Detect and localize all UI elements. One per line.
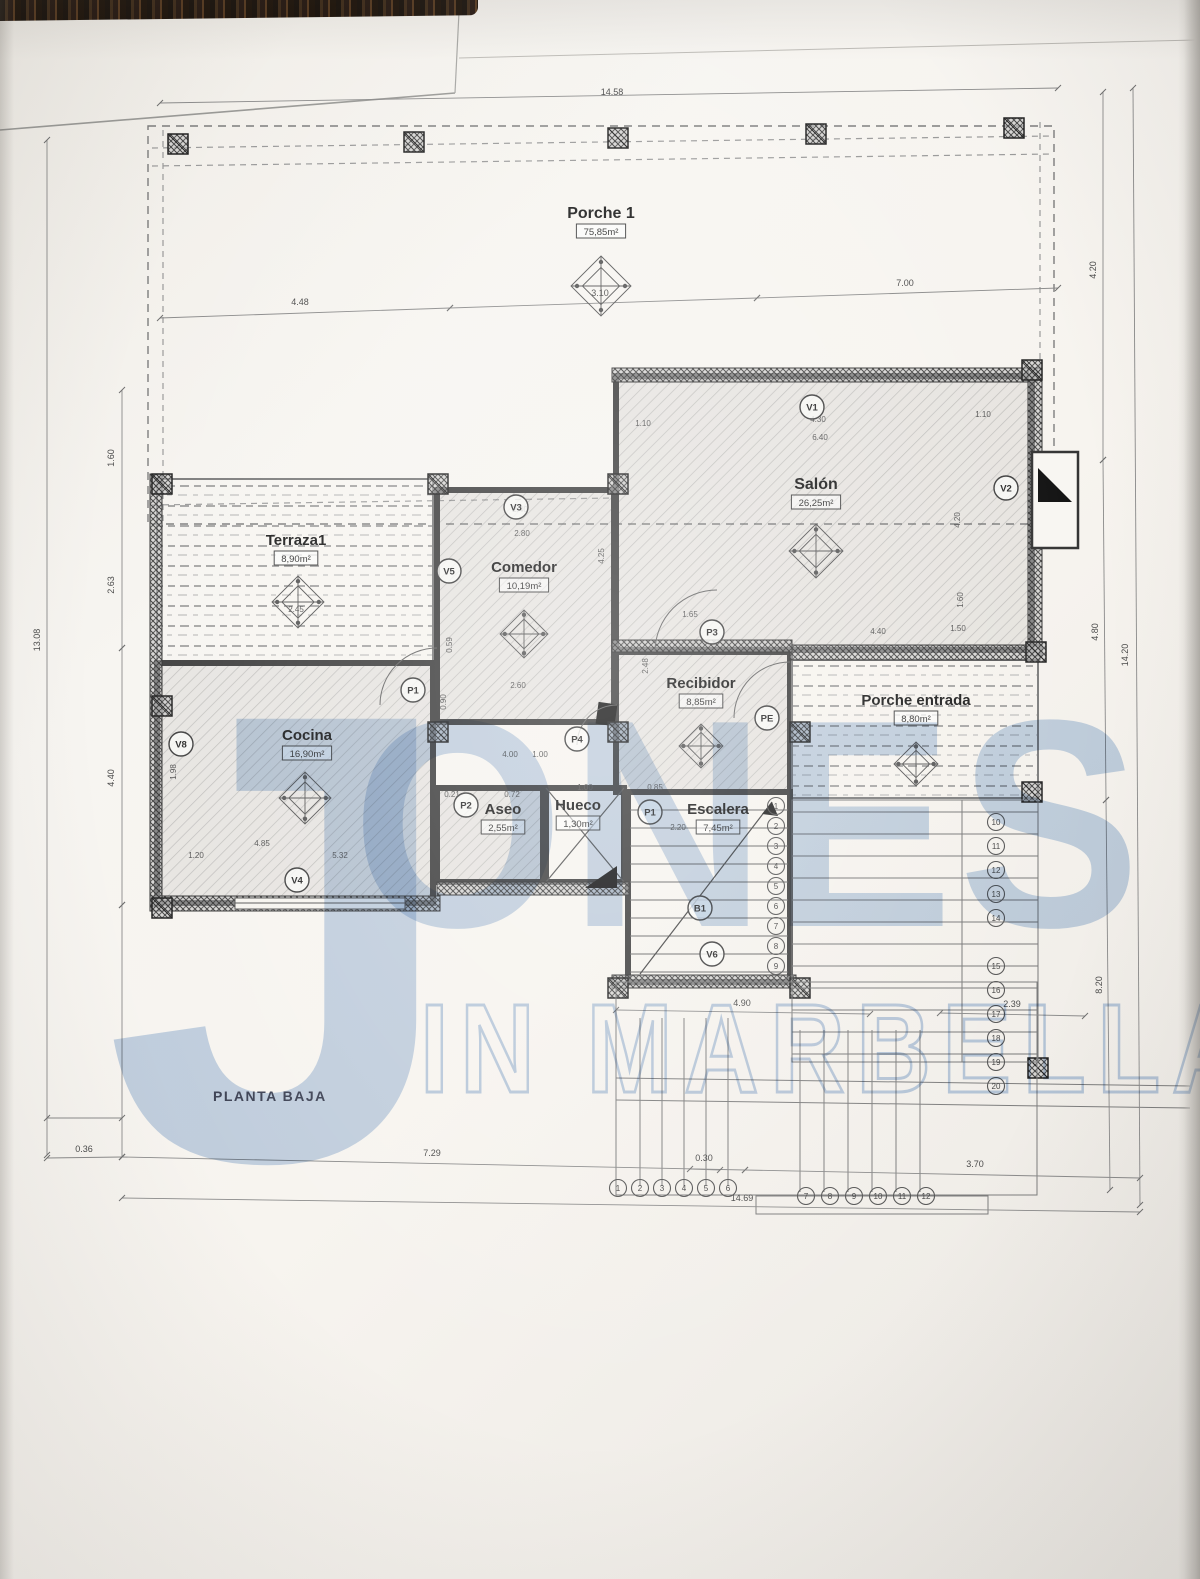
svg-text:1.00: 1.00	[577, 783, 593, 792]
paper-edge-shadow	[1184, 0, 1200, 1579]
svg-text:10: 10	[992, 818, 1001, 827]
svg-text:8,85m²: 8,85m²	[686, 697, 716, 708]
svg-text:6: 6	[774, 902, 779, 911]
svg-text:4.80: 4.80	[1090, 623, 1100, 641]
svg-text:0.72: 0.72	[504, 790, 520, 799]
svg-text:2.20: 2.20	[670, 823, 686, 832]
svg-text:7.00: 7.00	[896, 278, 914, 288]
svg-text:0.36: 0.36	[75, 1144, 93, 1154]
svg-text:26,25m²: 26,25m²	[799, 498, 834, 509]
svg-text:13.08: 13.08	[32, 629, 42, 652]
svg-text:1.10: 1.10	[975, 410, 991, 419]
room-label-porche1: Porche 175,85m²	[567, 205, 635, 316]
opening-label-p4: P4	[565, 727, 589, 751]
svg-text:8,90m²: 8,90m²	[281, 554, 311, 565]
plan-title: PLANTA BAJA	[213, 1088, 327, 1104]
opening-label-v1: V1	[800, 395, 824, 419]
svg-text:17: 17	[992, 1010, 1001, 1019]
opening-label-p1: P1	[401, 678, 425, 702]
opening-label-v4: V4	[285, 868, 309, 892]
sheet-border-lines	[0, 12, 1196, 130]
svg-text:Salón: Salón	[794, 476, 838, 493]
room-porche-entrada	[792, 660, 1038, 798]
svg-text:4.20: 4.20	[1088, 261, 1098, 279]
svg-text:13: 13	[992, 890, 1001, 899]
svg-text:V4: V4	[291, 876, 303, 887]
svg-text:75,85m²: 75,85m²	[584, 227, 619, 238]
svg-text:8: 8	[774, 942, 779, 951]
svg-text:Comedor: Comedor	[491, 559, 557, 576]
opening-label-v6: V6	[700, 942, 724, 966]
svg-text:2.60: 2.60	[510, 681, 526, 690]
svg-text:Recibidor: Recibidor	[666, 675, 735, 692]
svg-text:11: 11	[898, 1192, 907, 1201]
svg-text:7,45m²: 7,45m²	[703, 823, 733, 834]
svg-text:Cocina: Cocina	[282, 727, 333, 744]
opening-label-pe: PE	[755, 706, 779, 730]
svg-text:5: 5	[774, 882, 779, 891]
svg-text:3.10: 3.10	[591, 288, 609, 298]
svg-text:10: 10	[874, 1192, 883, 1201]
svg-text:2,55m²: 2,55m²	[488, 823, 518, 834]
svg-text:16,90m²: 16,90m²	[290, 749, 325, 760]
svg-text:V8: V8	[175, 740, 187, 751]
opening-label-p2: P2	[454, 793, 478, 817]
svg-text:B1: B1	[694, 904, 707, 915]
svg-text:2.80: 2.80	[514, 529, 530, 538]
svg-text:3.70: 3.70	[966, 1159, 984, 1169]
room-terraza1	[157, 479, 433, 663]
salon-bay-window	[1032, 452, 1078, 548]
svg-text:3: 3	[660, 1184, 665, 1193]
svg-text:7.29: 7.29	[423, 1148, 441, 1158]
svg-text:1: 1	[774, 802, 779, 811]
opening-label-v2: V2	[994, 476, 1018, 500]
svg-text:4.40: 4.40	[870, 627, 886, 636]
room-label-hueco: Hueco1,30m²	[555, 797, 601, 830]
room-label-aseo: Aseo2,55m²	[481, 801, 525, 834]
opening-label-v5: V5	[437, 559, 461, 583]
svg-text:V2: V2	[1000, 484, 1012, 495]
svg-text:2: 2	[774, 822, 779, 831]
svg-text:8: 8	[828, 1192, 833, 1201]
svg-text:V1: V1	[806, 403, 818, 414]
svg-text:14.20: 14.20	[1120, 644, 1130, 667]
svg-text:4.85: 4.85	[254, 839, 270, 848]
svg-text:7: 7	[774, 922, 779, 931]
svg-text:4.00: 4.00	[502, 750, 518, 759]
floor-plan-drawing: 14.584.483.107.0013.081.602.634.404.204.…	[0, 0, 1200, 1579]
svg-text:Terraza1: Terraza1	[266, 532, 327, 549]
opening-label-p1: P1	[638, 800, 662, 824]
svg-text:Aseo: Aseo	[485, 801, 522, 818]
svg-text:4: 4	[774, 862, 779, 871]
svg-text:1,30m²: 1,30m²	[563, 819, 593, 830]
svg-text:0.30: 0.30	[695, 1153, 713, 1163]
svg-text:P4: P4	[571, 735, 583, 746]
room-cocina	[157, 663, 433, 903]
svg-text:Escalera: Escalera	[687, 801, 749, 818]
room-label-escalera: Escalera7,45m²	[687, 801, 749, 834]
svg-text:1.10: 1.10	[635, 419, 651, 428]
svg-text:4: 4	[682, 1184, 687, 1193]
svg-text:9: 9	[774, 962, 779, 971]
svg-text:4.40: 4.40	[106, 769, 116, 787]
svg-text:14.58: 14.58	[601, 87, 624, 97]
svg-text:5.32: 5.32	[332, 851, 348, 860]
lower-terrace	[616, 982, 1190, 1214]
svg-text:1.50: 1.50	[950, 624, 966, 633]
svg-text:8,80m²: 8,80m²	[901, 714, 931, 725]
svg-text:8.20: 8.20	[1094, 976, 1104, 994]
svg-text:9: 9	[852, 1192, 857, 1201]
svg-text:1.60: 1.60	[956, 592, 965, 608]
svg-text:4.90: 4.90	[733, 998, 751, 1008]
svg-text:18: 18	[992, 1034, 1001, 1043]
svg-text:19: 19	[992, 1058, 1001, 1067]
svg-text:6: 6	[726, 1184, 731, 1193]
svg-text:V3: V3	[510, 503, 522, 514]
svg-text:V5: V5	[443, 567, 455, 578]
svg-text:1.00: 1.00	[532, 750, 548, 759]
svg-text:0.90: 0.90	[439, 694, 448, 710]
svg-text:14: 14	[992, 914, 1001, 923]
svg-text:PE: PE	[761, 714, 774, 725]
svg-text:2.48: 2.48	[641, 658, 650, 674]
svg-text:15: 15	[992, 962, 1001, 971]
hueco-arrow	[585, 866, 617, 888]
svg-text:P2: P2	[460, 801, 472, 812]
opening-label-b1: B1	[688, 896, 712, 920]
svg-text:10,19m²: 10,19m²	[507, 581, 542, 592]
svg-text:0.59: 0.59	[445, 637, 454, 653]
svg-text:1.65: 1.65	[682, 610, 698, 619]
svg-text:Porche 1: Porche 1	[567, 205, 635, 222]
svg-text:0.85: 0.85	[647, 783, 663, 792]
svg-text:2.39: 2.39	[1003, 999, 1021, 1009]
svg-text:4.25: 4.25	[597, 548, 606, 564]
ceiling-ornament-icon	[571, 256, 631, 316]
svg-text:Porche entrada: Porche entrada	[861, 692, 971, 709]
svg-text:P1: P1	[407, 686, 419, 697]
opening-label-p3: P3	[700, 620, 724, 644]
svg-text:P1: P1	[644, 808, 656, 819]
stair-numbers: 1234567891011121314151617181920123456789…	[610, 798, 1005, 1205]
svg-text:3: 3	[774, 842, 779, 851]
svg-text:12: 12	[922, 1192, 931, 1201]
svg-text:6.40: 6.40	[812, 433, 828, 442]
svg-text:2: 2	[638, 1184, 643, 1193]
svg-text:2.63: 2.63	[106, 576, 116, 594]
svg-text:5: 5	[704, 1184, 709, 1193]
svg-text:1.60: 1.60	[106, 449, 116, 467]
svg-text:1: 1	[616, 1184, 621, 1193]
opening-label-v8: V8	[169, 732, 193, 756]
svg-text:1.98: 1.98	[169, 764, 178, 780]
svg-text:4.48: 4.48	[291, 297, 309, 307]
svg-text:16: 16	[992, 986, 1001, 995]
svg-text:Hueco: Hueco	[555, 797, 601, 814]
svg-text:P3: P3	[706, 628, 718, 639]
svg-text:V6: V6	[706, 950, 718, 961]
svg-text:20: 20	[992, 1082, 1001, 1091]
svg-text:12: 12	[992, 866, 1001, 875]
svg-text:1.20: 1.20	[188, 851, 204, 860]
photo-of-floor-plan: 14.584.483.107.0013.081.602.634.404.204.…	[0, 0, 1200, 1579]
svg-text:2.45: 2.45	[288, 605, 304, 614]
svg-text:11: 11	[992, 842, 1001, 851]
opening-label-v3: V3	[504, 495, 528, 519]
svg-text:4.20: 4.20	[953, 512, 962, 528]
svg-text:7: 7	[804, 1192, 809, 1201]
